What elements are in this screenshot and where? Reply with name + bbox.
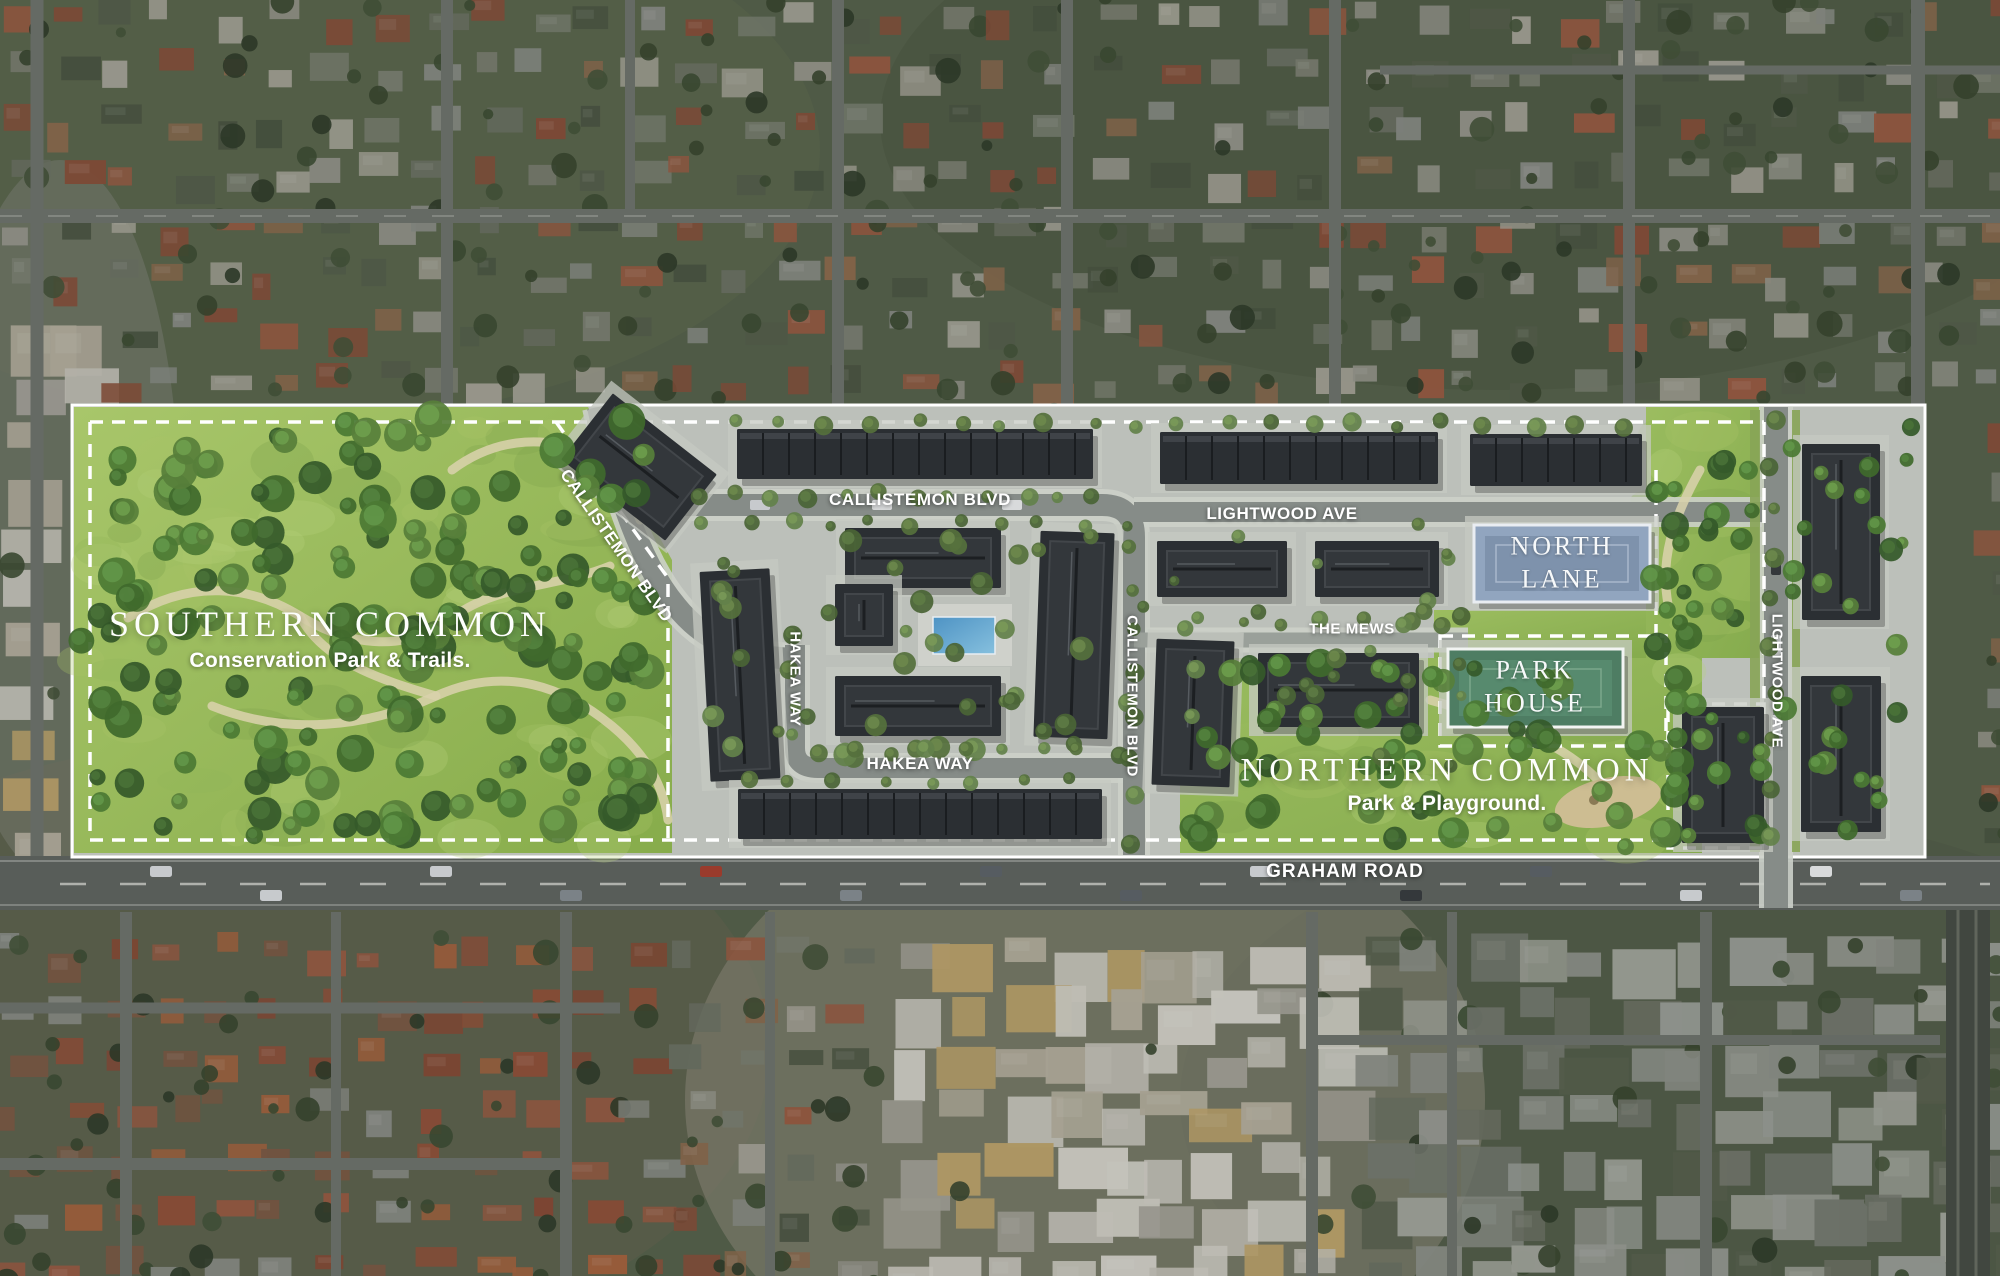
townhouse-row	[1151, 423, 1447, 493]
masterplan-aerial-view: SOUTHERN COMMON Conservation Park & Trai…	[0, 0, 2000, 1276]
apartment-building	[826, 575, 902, 655]
townhouse-row	[729, 780, 1111, 848]
apartment-building	[1148, 532, 1296, 606]
north-lane-building	[1465, 516, 1659, 611]
apartment-building	[826, 667, 1010, 745]
masterplan-site	[0, 0, 2000, 1276]
apartment-building	[690, 559, 790, 791]
